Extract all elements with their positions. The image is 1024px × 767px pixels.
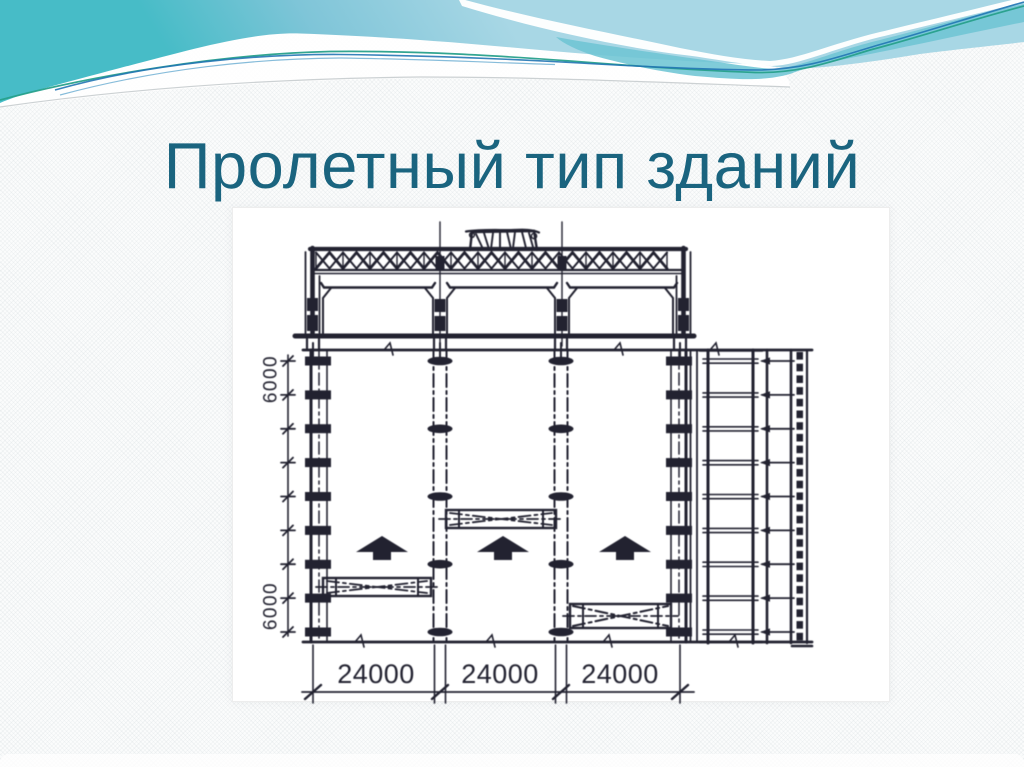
svg-text:24000: 24000 — [461, 659, 539, 689]
svg-text:24000: 24000 — [581, 659, 659, 689]
svg-text:6000: 6000 — [261, 582, 282, 630]
svg-text:6000: 6000 — [261, 355, 282, 403]
svg-text:24000: 24000 — [337, 659, 415, 689]
